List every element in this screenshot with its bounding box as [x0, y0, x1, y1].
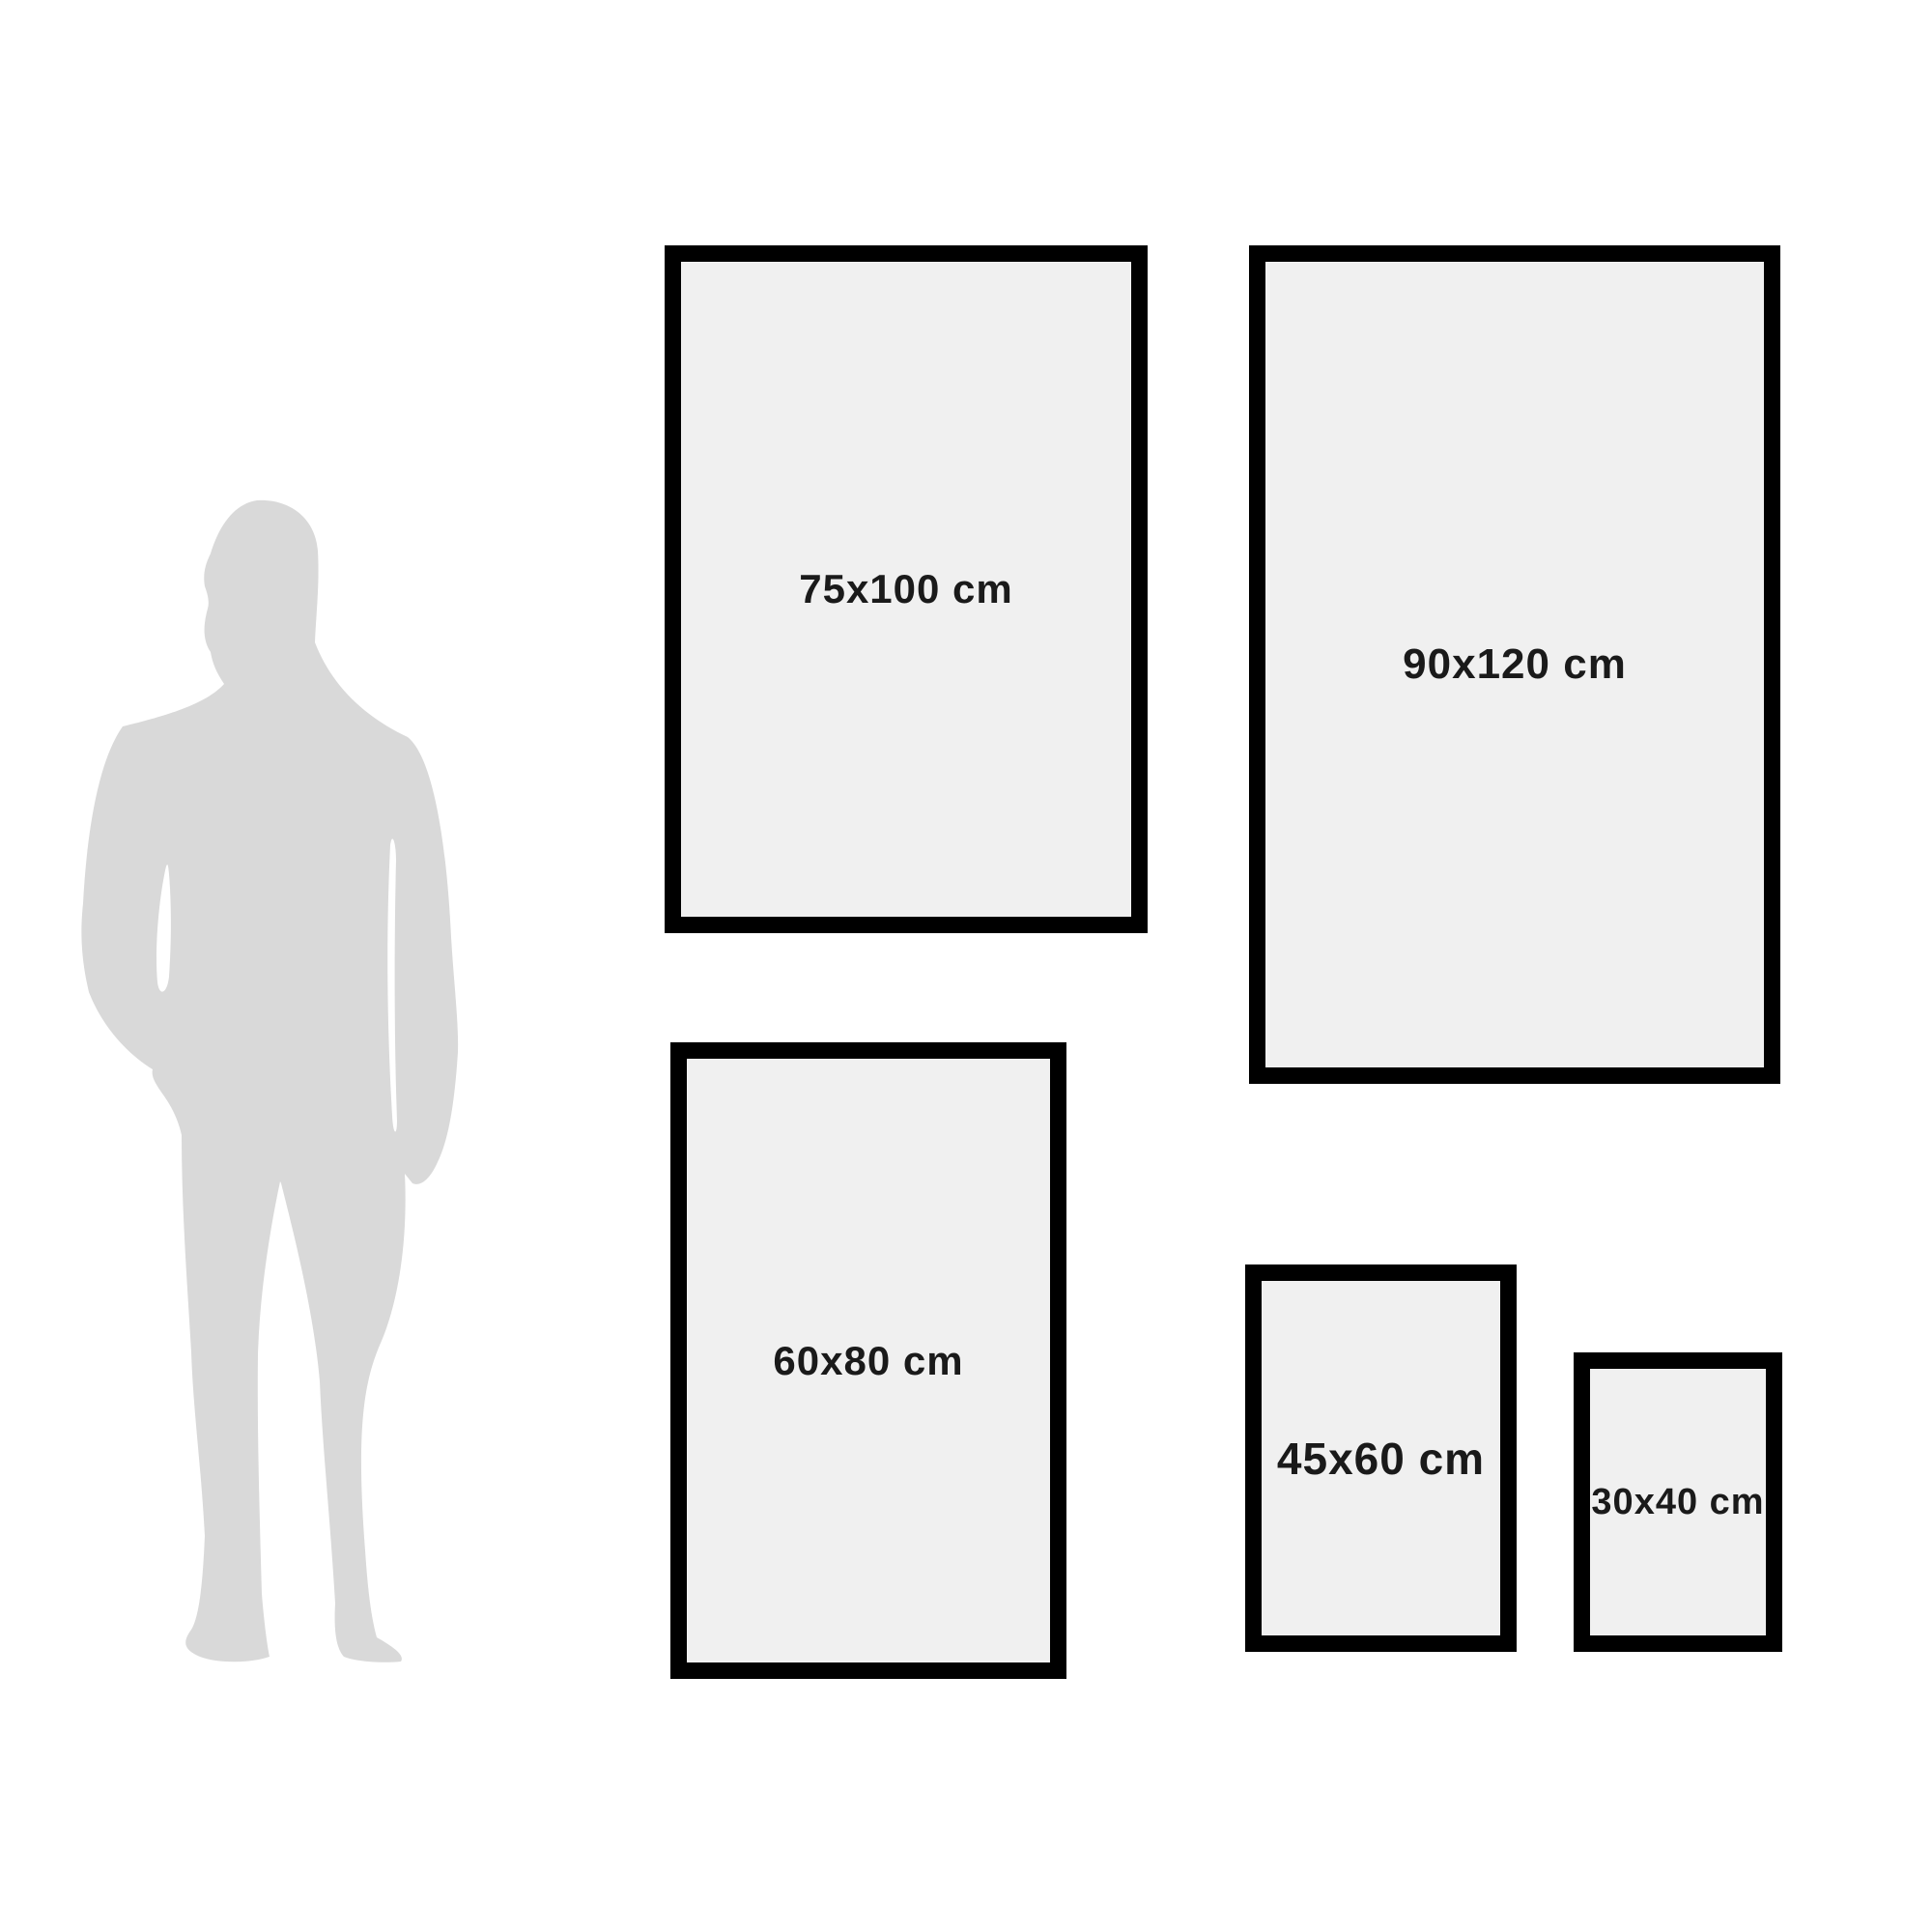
frame-30x40cm-label: 30x40 cm	[1591, 1484, 1764, 1520]
frame-30x40cm: 30x40 cm	[1574, 1352, 1782, 1652]
frame-90x120cm-label: 90x120 cm	[1403, 643, 1627, 686]
size-comparison-diagram: 75x100 cm 90x120 cm 60x80 cm 45x60 cm 30…	[0, 0, 1932, 1932]
frame-45x60cm: 45x60 cm	[1245, 1264, 1517, 1652]
frame-90x120cm: 90x120 cm	[1249, 245, 1780, 1084]
frame-45x60cm-label: 45x60 cm	[1277, 1436, 1485, 1481]
frame-75x100cm: 75x100 cm	[665, 245, 1148, 933]
human-silhouette	[68, 497, 473, 1666]
frame-60x80cm-label: 60x80 cm	[773, 1341, 963, 1381]
human-silhouette-shape	[81, 500, 458, 1662]
frame-75x100cm-label: 75x100 cm	[799, 569, 1013, 610]
frame-60x80cm: 60x80 cm	[670, 1042, 1066, 1679]
